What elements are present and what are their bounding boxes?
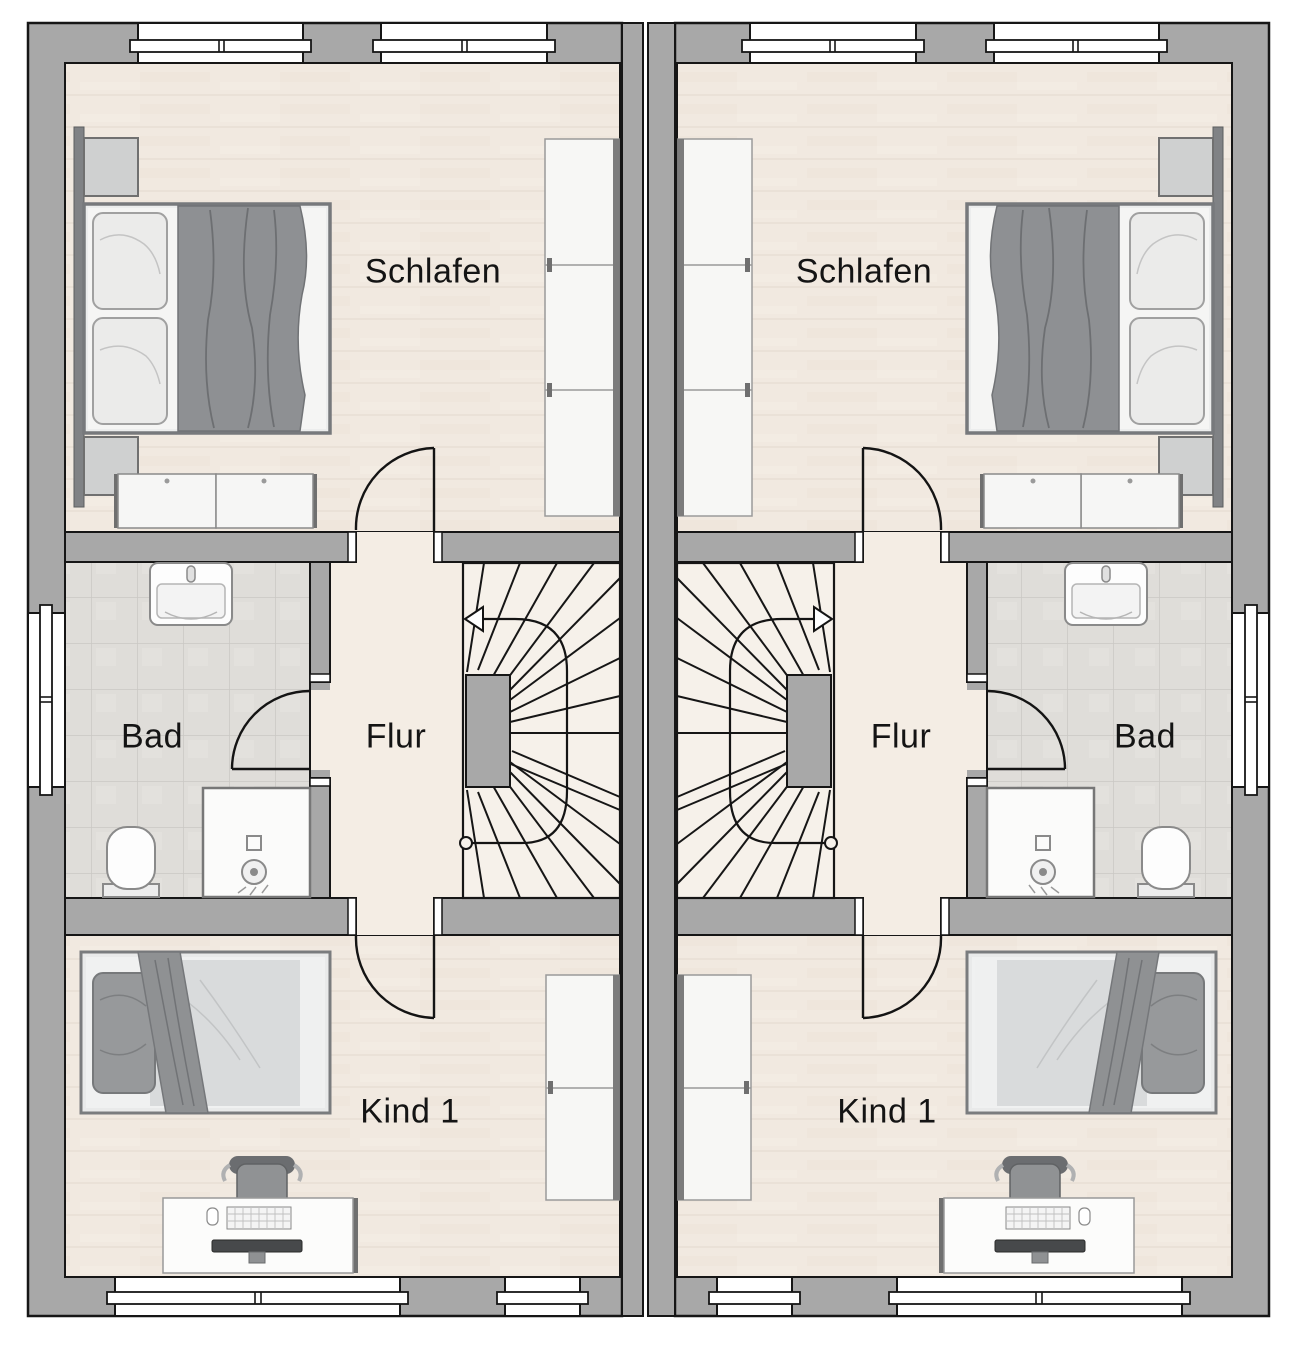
room-label-child-left: Kind 1	[360, 1093, 459, 1132]
room-label-hall-right: Flur	[871, 718, 932, 757]
room-label-hall-left: Flur	[366, 718, 427, 757]
room-label-bedroom-left: Schlafen	[365, 253, 501, 292]
room-label-child-right: Kind 1	[837, 1093, 936, 1132]
floor-plan: Schlafen Schlafen Bad Flur Flur Bad Kind…	[0, 0, 1297, 1349]
room-label-bath-right: Bad	[1114, 718, 1176, 757]
unit-right	[675, 23, 1269, 1316]
floor-plan-drawing	[0, 0, 1297, 1349]
room-label-bath-left: Bad	[121, 718, 183, 757]
room-label-bedroom-right: Schlafen	[796, 253, 932, 292]
party-wall	[622, 23, 675, 1316]
unit-left	[28, 23, 622, 1316]
